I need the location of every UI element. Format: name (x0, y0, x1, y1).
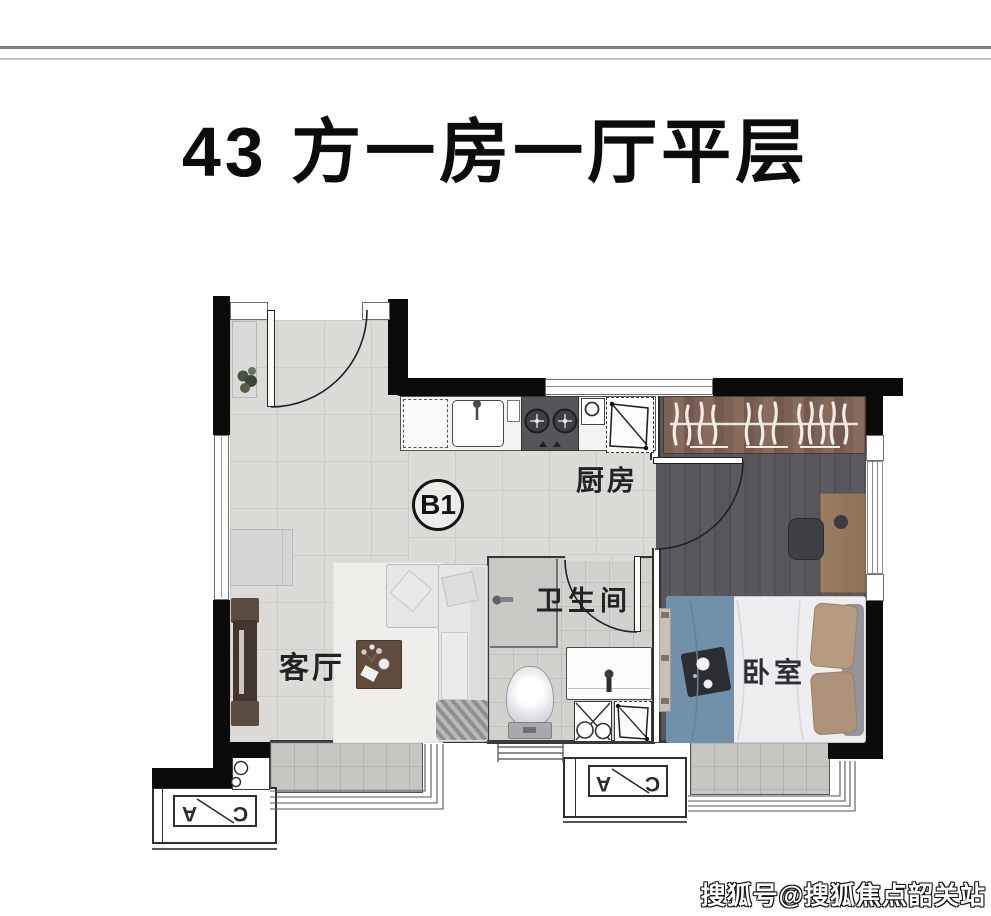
balcony-bedroom (690, 742, 830, 795)
floor-plan-page: 43 方一房一厅平层 A C A C (0, 0, 991, 916)
bed-pillow (809, 602, 858, 670)
window-right-mullion (872, 461, 873, 574)
bedside-bench (659, 608, 671, 712)
tv-cabinet (233, 620, 257, 704)
bed-pillow (810, 671, 858, 736)
window-left-glazing (221, 437, 222, 598)
gas-point (581, 398, 605, 425)
entry-console (232, 321, 257, 398)
ac-letter-c: C (233, 801, 248, 825)
balcony-living (270, 742, 423, 793)
wall (865, 396, 883, 436)
entry-door (267, 310, 275, 407)
room-label-kitchen: 厨房 (576, 459, 638, 499)
window-right-frame (866, 574, 884, 601)
side-cabinet (230, 529, 293, 586)
top-divider-line (0, 46, 991, 49)
wall (152, 768, 232, 788)
desk-chair (788, 518, 824, 560)
air-conditioner-unit-left: A C (173, 795, 257, 827)
window-kitchen (545, 379, 713, 395)
wardrobe (663, 396, 866, 454)
washbasin-edge (568, 688, 650, 689)
laundry-appliance (614, 701, 652, 742)
wall (713, 378, 903, 396)
bathroom-door (634, 556, 641, 632)
desk (820, 493, 866, 593)
wall (398, 378, 546, 396)
ac-platform-left-edge (162, 789, 163, 842)
window-right-frame (866, 435, 884, 461)
page-title: 43 方一房一厅平层 (0, 96, 991, 197)
room-label-bedroom: 卧室 (742, 651, 806, 691)
sofa-throw-blanket (436, 700, 488, 740)
room-label-bathroom: 卫生间 (536, 579, 632, 618)
kitchen-cabinet (403, 399, 448, 448)
wall (213, 600, 230, 758)
room-label-living: 客厅 (279, 643, 345, 687)
speaker (231, 701, 259, 726)
bathroom-door-opening (565, 554, 637, 561)
entry-wall-band (230, 302, 268, 320)
air-conditioner-unit-middle: A C (588, 765, 668, 797)
counter-divider (507, 400, 520, 422)
tv-screen (239, 630, 244, 694)
fridge (606, 397, 654, 453)
unit-badge-text: B1 (420, 489, 456, 521)
bedroom-door (653, 457, 743, 464)
window-right-glazing (867, 461, 883, 574)
wall (828, 742, 883, 759)
ac-letter-a: A (596, 771, 611, 795)
coffee-table (356, 640, 402, 689)
ac-platform-middle-ledge (563, 821, 687, 823)
washbasin (566, 647, 652, 700)
kitchen-sink (452, 400, 504, 447)
ac-platform-middle-edge (575, 759, 576, 816)
washing-machine (574, 701, 612, 742)
stove (521, 396, 579, 451)
window-kitchen-glazing (546, 386, 712, 387)
wall (863, 600, 883, 751)
drain-pipe-box (232, 757, 270, 790)
toilet (506, 666, 554, 726)
entry-wall-band (362, 302, 390, 320)
ac-platform-left-ledge (152, 848, 277, 850)
ac-letter-c: C (645, 771, 660, 795)
bed-tray (681, 647, 732, 698)
unit-badge: B1 (412, 479, 464, 531)
window-right-mullion (877, 461, 878, 574)
ac-letter-a: A (182, 801, 197, 825)
sofa-seat-cushion (441, 632, 468, 700)
side-cabinet-divider (282, 530, 283, 585)
toilet-button (523, 727, 536, 733)
watermark: 搜狐号@搜狐焦点韶关站 (701, 876, 986, 912)
wall (213, 296, 230, 435)
top-divider-line-2 (0, 58, 991, 60)
